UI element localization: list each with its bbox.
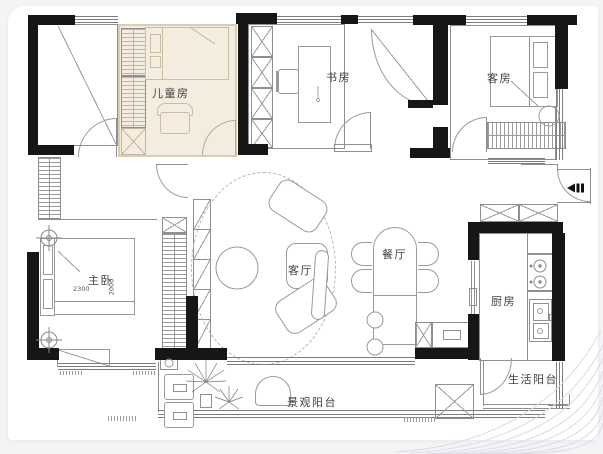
guest-door-leaf xyxy=(486,117,487,152)
label-service-balcony: 生活阳台 xyxy=(508,371,558,387)
wall-segment xyxy=(238,24,248,155)
hatch-ticks xyxy=(108,416,138,421)
hatch-ticks xyxy=(133,371,155,375)
wall-segment xyxy=(408,100,433,108)
dining-table-line xyxy=(374,295,416,296)
window xyxy=(74,16,118,23)
page: { "page": { "background": "#f4f4f7", "ca… xyxy=(0,0,603,454)
plant-pot xyxy=(200,394,212,408)
linev-element xyxy=(162,28,163,79)
wall-segment xyxy=(155,348,227,360)
wall-segment xyxy=(27,252,39,360)
master-door-leaf xyxy=(156,164,188,165)
corridor-door-leaf xyxy=(371,29,432,106)
lineh-element xyxy=(55,301,134,302)
corridor-closet xyxy=(162,233,187,358)
wall-segment xyxy=(415,348,473,359)
dim-bed-width: 2300 xyxy=(73,285,90,293)
thin-element xyxy=(533,323,549,339)
pillow xyxy=(150,56,161,68)
washing-machine xyxy=(164,374,194,400)
shoe-cabinet-x xyxy=(519,204,558,222)
wall-segment xyxy=(555,25,568,89)
wall-segment xyxy=(410,148,450,158)
thin-element xyxy=(533,303,549,321)
hatch-ticks xyxy=(404,417,436,422)
children-bed xyxy=(145,27,229,80)
plan-element xyxy=(500,423,603,454)
pillow xyxy=(43,279,53,309)
wall-segment xyxy=(468,222,563,233)
children-cabinet-x xyxy=(121,128,146,155)
label-guest-room: 客房 xyxy=(487,70,512,86)
window xyxy=(556,89,563,160)
dining-chair xyxy=(418,269,439,293)
wall-segment xyxy=(236,13,277,24)
wall-segment xyxy=(186,296,198,352)
stove-counter xyxy=(527,254,553,291)
shoe-cabinet-x xyxy=(480,204,519,222)
master-wardrobe xyxy=(38,157,61,219)
wall-segment xyxy=(527,15,577,25)
children-chair-seat xyxy=(160,112,190,134)
living-balcony-slider[interactable] xyxy=(227,357,415,365)
dim-bed-depth: 2000 xyxy=(107,279,115,296)
wall-segment xyxy=(433,25,448,105)
master-top-wall xyxy=(38,219,157,220)
study-shelf-cell xyxy=(251,88,273,119)
wall-segment xyxy=(28,145,74,155)
wall-segment xyxy=(28,15,38,155)
balcony-chair xyxy=(255,376,291,406)
label-children-room: 儿童房 xyxy=(152,85,190,101)
thin-element xyxy=(173,384,187,392)
label-study: 书房 xyxy=(326,69,351,85)
sink-unit xyxy=(529,299,552,342)
entry-door-arc[interactable] xyxy=(557,169,590,202)
label-living-room: 客厅 xyxy=(288,262,313,278)
study-shelf-cell xyxy=(251,26,273,57)
service-door-leaf xyxy=(480,358,481,395)
study-door-sill xyxy=(334,144,372,152)
kitchen-slider-handle xyxy=(469,288,477,306)
master-door-arc[interactable] xyxy=(156,164,188,198)
washing-machine xyxy=(164,402,194,428)
pillow xyxy=(43,245,53,275)
wall-segment xyxy=(341,15,358,24)
entry-wall-line xyxy=(557,202,591,203)
storage-door-leaf xyxy=(116,118,117,157)
window xyxy=(58,363,156,370)
pillow xyxy=(150,34,161,53)
dining-cabinet-x xyxy=(415,322,432,348)
thin-element xyxy=(173,412,187,420)
hatch-ticks xyxy=(60,371,82,375)
window xyxy=(466,16,527,23)
children-door-leaf xyxy=(235,120,236,155)
blanket-fold xyxy=(58,251,80,272)
entry-wall-line xyxy=(521,164,557,165)
children-wardrobe xyxy=(121,76,146,128)
label-view-balcony: 景观阳台 xyxy=(287,394,337,410)
balcony-rail xyxy=(158,410,545,418)
thin-element xyxy=(443,330,461,340)
label-kitchen: 厨房 xyxy=(491,293,516,309)
closet-top-x xyxy=(162,217,187,233)
entry-door-leaf xyxy=(557,169,590,170)
study-shelf-cell xyxy=(251,57,273,88)
wall-segment xyxy=(552,233,565,361)
blanket-fold xyxy=(191,28,215,44)
dining-chair xyxy=(351,269,372,293)
wall-segment xyxy=(468,233,479,260)
dining-counter xyxy=(432,322,470,348)
children-wardrobe xyxy=(121,28,146,76)
balcony-wall xyxy=(158,362,159,412)
dining-table xyxy=(373,227,417,345)
window xyxy=(358,16,413,23)
pillow xyxy=(533,42,548,68)
wall-segment xyxy=(27,348,59,360)
wall-segment xyxy=(238,144,268,155)
dining-chair xyxy=(418,242,439,266)
dining-chair xyxy=(351,242,372,266)
study-chair xyxy=(278,69,299,94)
entry-wall-line xyxy=(590,168,591,204)
kitchen-cabinet xyxy=(527,233,553,254)
guest-wardrobe xyxy=(487,122,566,149)
window xyxy=(277,16,341,23)
balcony-cabinet-x xyxy=(435,384,474,419)
study-chair-back xyxy=(276,71,278,92)
blanket-fold xyxy=(511,81,538,106)
floor-plan: 儿童房 书房 客房 主卧 客厅 餐厅 厨房 生活阳台 景观阳台 2300 200… xyxy=(0,0,603,454)
wall-segment xyxy=(433,127,448,150)
wall-segment xyxy=(413,15,466,25)
label-dining-room: 餐厅 xyxy=(382,246,407,262)
master-headboard xyxy=(40,238,55,316)
